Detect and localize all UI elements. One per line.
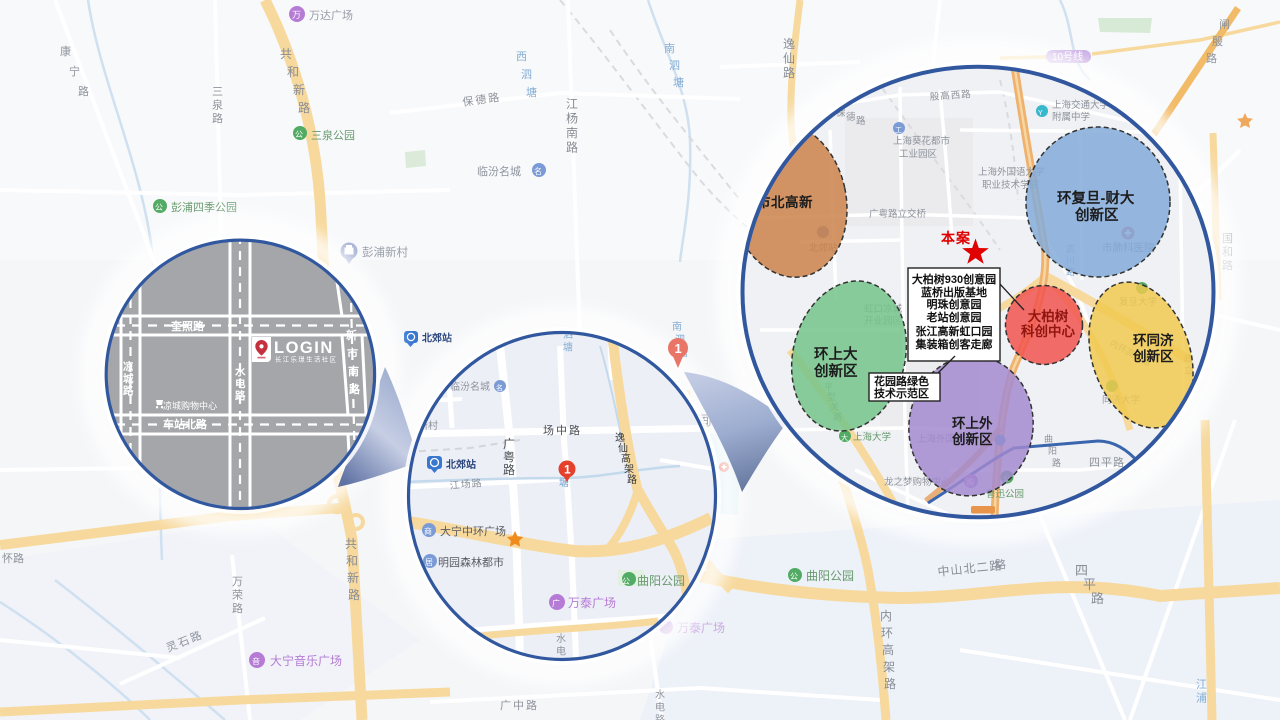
svg-text:长江乐璟生活社区: 长江乐璟生活社区 xyxy=(275,355,337,364)
svg-text:万: 万 xyxy=(292,10,301,20)
svg-text:大: 大 xyxy=(841,433,848,442)
svg-text:居: 居 xyxy=(425,558,433,567)
svg-text:广粤路立交桥: 广粤路立交桥 xyxy=(869,208,927,220)
svg-text:科创中心: 科创中心 xyxy=(1021,323,1075,339)
svg-text:曲阳公园: 曲阳公园 xyxy=(637,574,685,588)
svg-text:上海大学: 上海大学 xyxy=(853,431,891,443)
svg-text:彭浦四季公园: 彭浦四季公园 xyxy=(171,200,237,214)
svg-text:上海葵花都市: 上海葵花都市 xyxy=(893,135,951,147)
svg-text:环复旦-财大: 环复旦-财大 xyxy=(1057,189,1135,207)
svg-text:公: 公 xyxy=(155,203,163,212)
svg-text:万泰广场: 万泰广场 xyxy=(568,596,616,610)
svg-text:老站创意园: 老站创意园 xyxy=(926,310,982,324)
svg-text:名: 名 xyxy=(534,166,542,176)
svg-text:大柏树: 大柏树 xyxy=(1028,308,1069,324)
svg-text:明园森林都市: 明园森林都市 xyxy=(438,555,504,569)
svg-text:工业园区: 工业园区 xyxy=(899,149,938,160)
svg-text:水电路: 水电路 xyxy=(655,689,665,720)
svg-text:LOGIN: LOGIN xyxy=(274,339,334,357)
svg-text:本案: 本案 xyxy=(941,230,971,246)
svg-text:1: 1 xyxy=(675,341,682,356)
svg-text:万荣路: 万荣路 xyxy=(232,576,243,615)
svg-text:1: 1 xyxy=(564,463,571,477)
svg-text:张江高新虹口园: 张江高新虹口园 xyxy=(916,324,993,338)
svg-text:北郊站: 北郊站 xyxy=(422,332,452,345)
svg-text:凉城购物中心: 凉城购物中心 xyxy=(163,400,217,411)
svg-text:名: 名 xyxy=(496,383,503,392)
svg-text:广粤路: 广粤路 xyxy=(503,437,515,477)
svg-text:公: 公 xyxy=(295,130,303,139)
svg-text:花园路绿色: 花园路绿色 xyxy=(874,374,929,388)
svg-text:北郊站: 北郊站 xyxy=(446,458,476,471)
svg-text:怀路: 怀路 xyxy=(2,552,24,565)
svg-text:逸仙路: 逸仙路 xyxy=(783,37,795,80)
svg-text:大宁中环广场: 大宁中环广场 xyxy=(440,524,506,538)
svg-text:场中路: 场中路 xyxy=(543,423,582,437)
svg-text:临汾名城: 临汾名城 xyxy=(450,380,490,393)
svg-text:环上外: 环上外 xyxy=(952,415,993,431)
svg-text:技术示范区: 技术示范区 xyxy=(874,386,929,400)
svg-text:大柏树930创意园: 大柏树930创意园 xyxy=(912,272,996,286)
svg-text:广中路: 广中路 xyxy=(500,699,539,712)
svg-text:彭浦新村: 彭浦新村 xyxy=(362,245,408,259)
svg-text:车站北路: 车站北路 xyxy=(163,417,208,431)
svg-text:环同济: 环同济 xyxy=(1133,332,1174,348)
svg-text:江杨南路: 江杨南路 xyxy=(566,97,578,155)
svg-text:创新区: 创新区 xyxy=(1074,206,1119,224)
svg-text:大宁音乐广场: 大宁音乐广场 xyxy=(270,653,342,668)
svg-text:明珠创意园: 明珠创意园 xyxy=(927,297,982,311)
svg-text:商: 商 xyxy=(424,526,432,536)
svg-text:公: 公 xyxy=(622,577,630,586)
svg-text:临汾名城: 临汾名城 xyxy=(477,164,521,178)
svg-text:Y: Y xyxy=(1038,110,1043,117)
svg-text:水电路: 水电路 xyxy=(234,365,246,402)
svg-text:万达广场: 万达广场 xyxy=(309,8,353,22)
svg-text:凉城路: 凉城路 xyxy=(123,360,134,397)
svg-text:集装箱创客走廊: 集装箱创客走廊 xyxy=(915,337,993,351)
svg-text:附属中学: 附属中学 xyxy=(1052,111,1090,123)
svg-text:奎照路: 奎照路 xyxy=(170,319,205,333)
svg-text:蓝桥出版基地: 蓝桥出版基地 xyxy=(921,285,987,299)
svg-text:广: 广 xyxy=(552,598,560,608)
svg-text:创新区: 创新区 xyxy=(813,362,858,380)
svg-text:公: 公 xyxy=(790,572,798,581)
svg-text:创新区: 创新区 xyxy=(951,431,993,447)
svg-text:创新区: 创新区 xyxy=(1132,348,1174,364)
svg-text:环上大: 环上大 xyxy=(814,345,858,363)
svg-text:三泉公园: 三泉公园 xyxy=(311,128,355,142)
svg-text:路: 路 xyxy=(995,558,1006,571)
svg-text:四平路: 四平路 xyxy=(1089,456,1125,469)
svg-text:三泉路: 三泉路 xyxy=(212,86,223,125)
svg-text:音: 音 xyxy=(252,656,260,666)
svg-text:工: 工 xyxy=(895,127,902,134)
svg-text:曲阳公园: 曲阳公园 xyxy=(806,569,854,583)
